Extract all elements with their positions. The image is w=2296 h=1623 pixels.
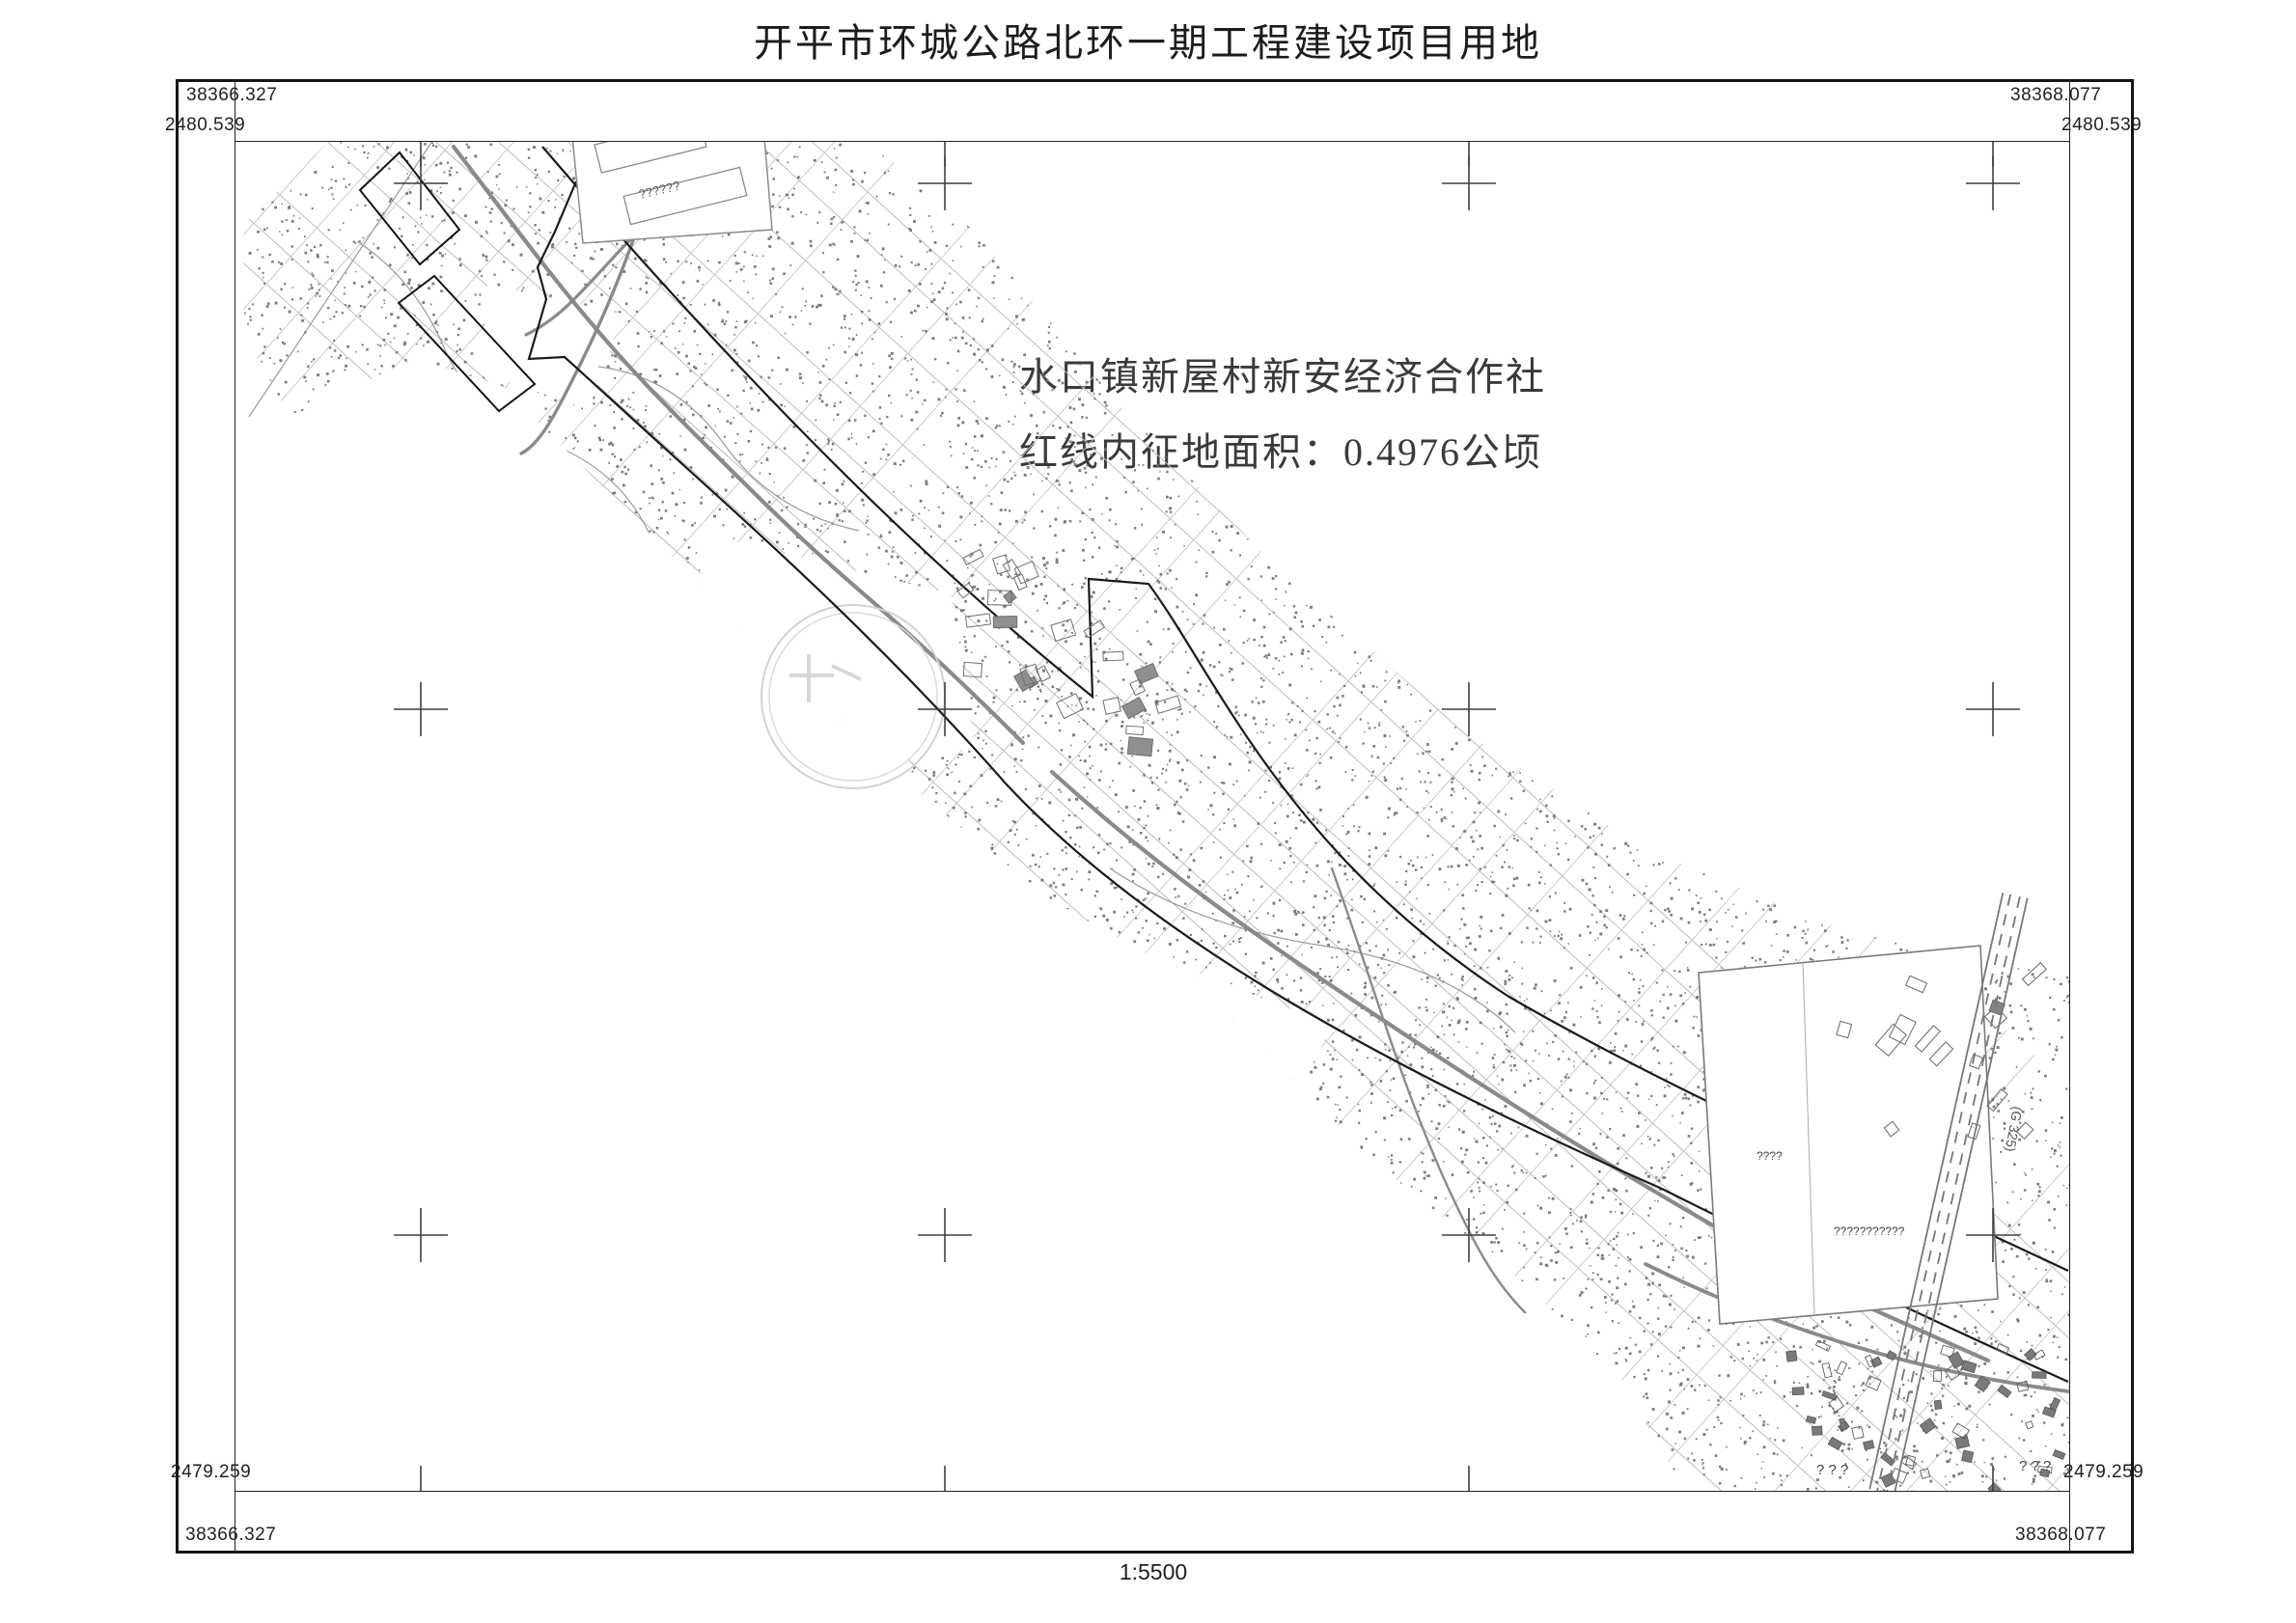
highway-g325-label: (G 325) xyxy=(2003,1105,2026,1153)
map-canvas: ?????? ???? ??????????? (G 325) ? ? ? ? … xyxy=(235,142,2069,1491)
compound-label-long: ??????????? xyxy=(1834,1224,1905,1238)
scale-label: 1:5500 xyxy=(1066,1559,1240,1585)
unreadable-text-left: ? ? ? xyxy=(1816,1462,1848,1478)
unreadable-text-right: ? ? ? xyxy=(2019,1458,2051,1474)
coord-bottom-right-northing: 2479.259 xyxy=(2063,1462,2144,1483)
coord-top-left-easting: 38366.327 xyxy=(186,85,277,106)
coord-top-left-northing: 2480.539 xyxy=(165,115,245,136)
coord-top-right-easting: 38368.077 xyxy=(2010,85,2101,106)
coord-top-right-northing: 2480.539 xyxy=(2061,115,2142,136)
coord-bottom-left-easting: 38366.327 xyxy=(185,1525,276,1546)
page-title: 开平市环城公路北环一期工程建设项目用地 xyxy=(0,12,2296,68)
compound-label-small: ???? xyxy=(1757,1149,1783,1163)
map-sheet: 开平市环城公路北环一期工程建设项目用地 38366.327 2480.539 3… xyxy=(0,0,2296,1623)
generated-map-graphics xyxy=(235,142,2069,1491)
coord-bottom-right-easting: 38368.077 xyxy=(2015,1525,2106,1546)
